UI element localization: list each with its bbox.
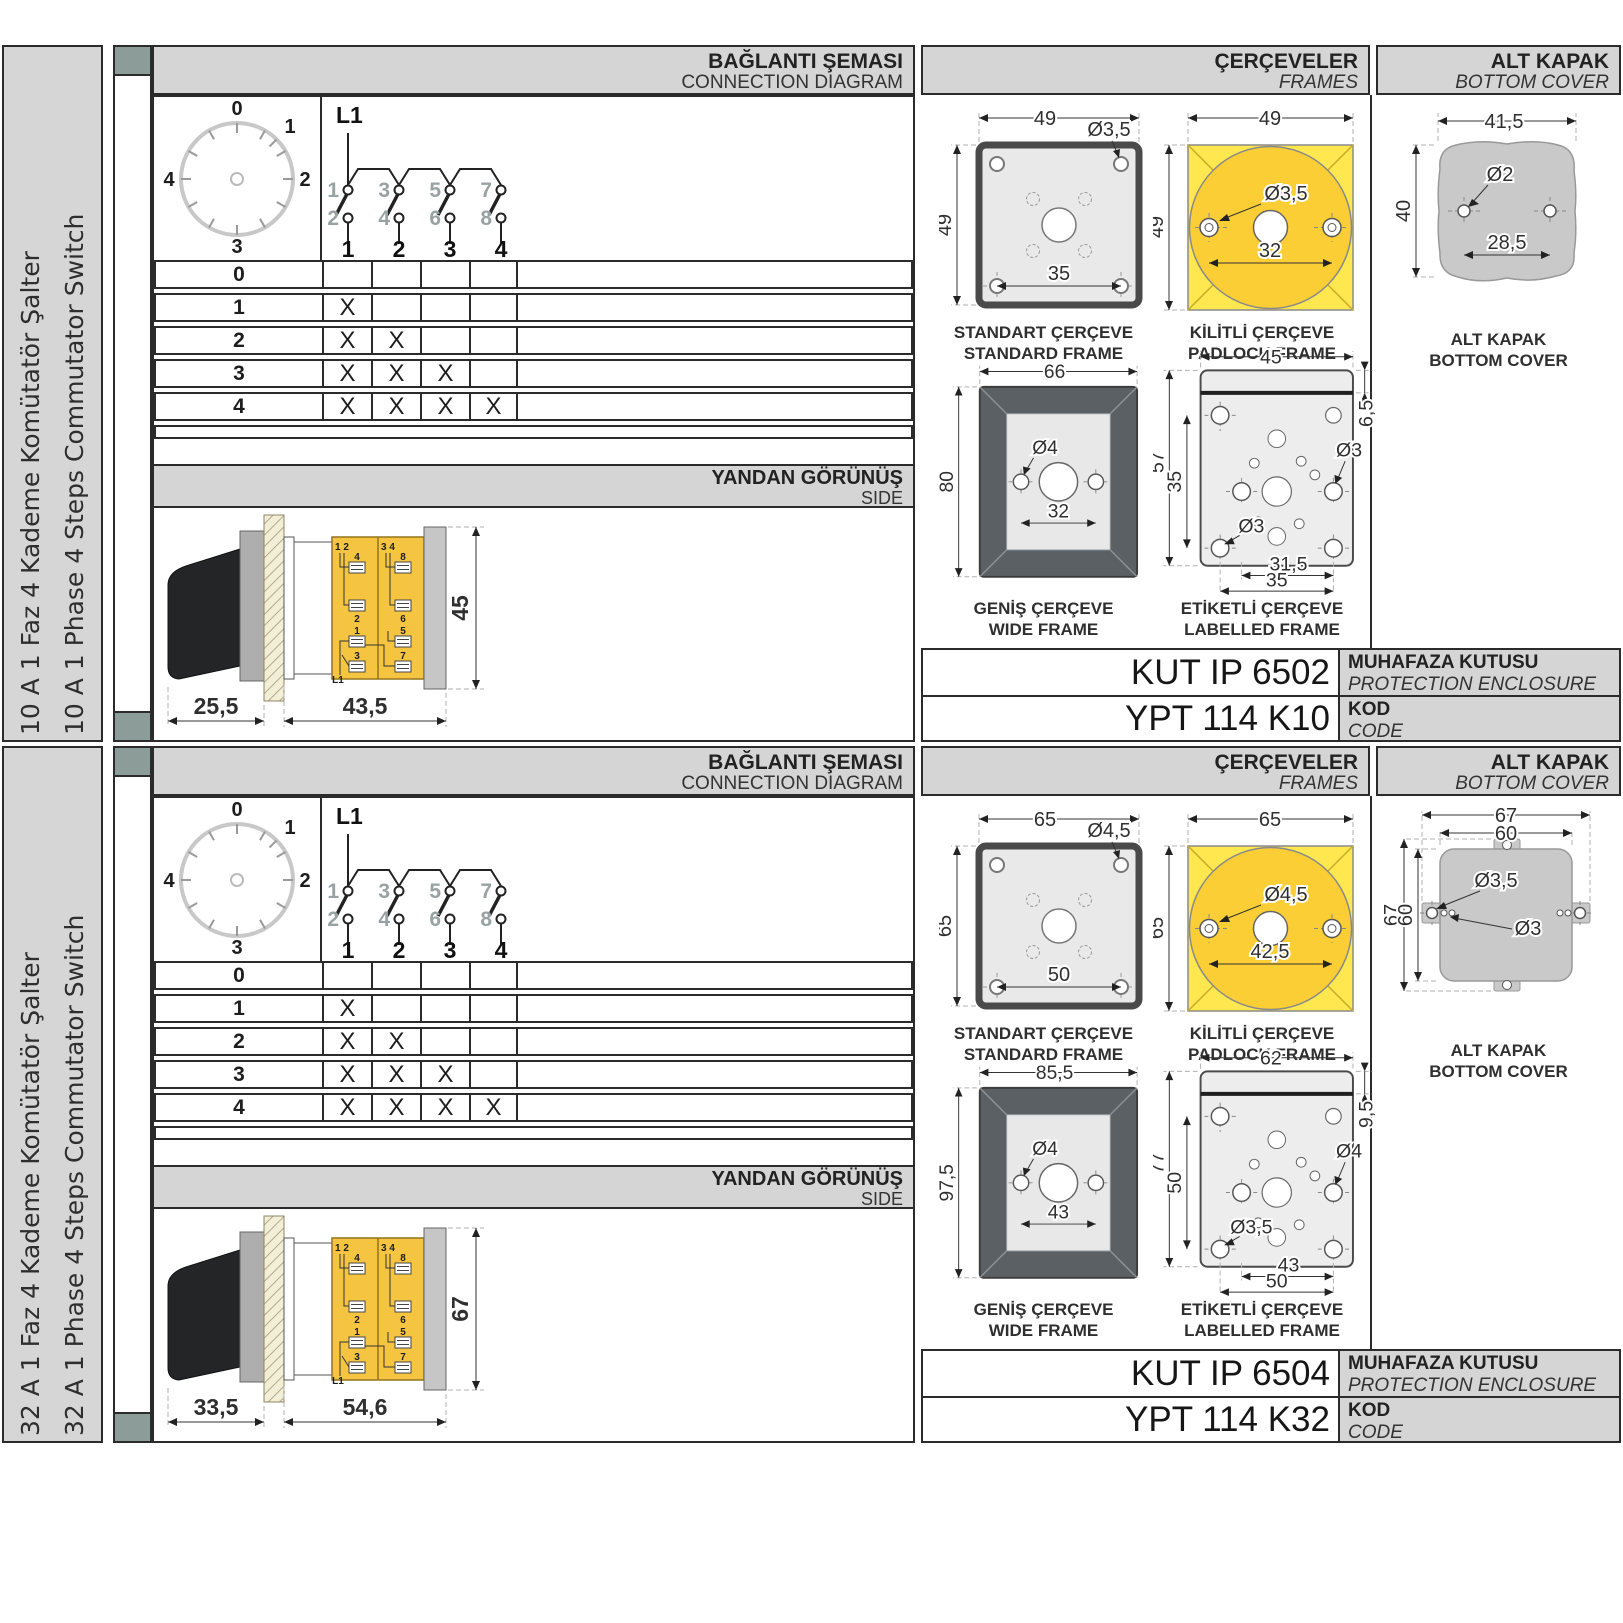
dim-lbl-width: 62 xyxy=(1260,1048,1282,1070)
product-code: YPT 114 K10 xyxy=(923,697,1338,740)
pole-1: 1 xyxy=(342,937,355,961)
table-cell-empty xyxy=(469,328,518,353)
contact-5: 5 xyxy=(429,179,441,202)
dim-lbl-hole-left: Ø3,5 xyxy=(1230,1217,1272,1239)
dim-handle-depth: 33,5 xyxy=(194,1394,239,1420)
table-cell-mark: X xyxy=(322,394,371,419)
table-cell-empty xyxy=(469,262,518,287)
term-1: 1 xyxy=(354,626,360,637)
contact-2: 2 xyxy=(327,207,339,230)
section-32a: 32 A 1 Faz 4 Kademe Komütatör Şalter 32 … xyxy=(0,746,1623,1443)
bottom-cover-figure: 67 60 Ø3,5 Ø3 67 60 xyxy=(1376,801,1621,1036)
term-2: 2 xyxy=(354,1315,360,1326)
schematic-bus xyxy=(348,169,501,185)
dial-pos-3: 3 xyxy=(231,236,242,258)
dial-pos-4: 4 xyxy=(163,169,175,191)
contact-3: 3 xyxy=(378,880,390,903)
schematic-box: L1 xyxy=(322,798,913,961)
term-3: 3 xyxy=(354,651,360,662)
dim-lbl-band: 6,5 xyxy=(1355,400,1377,427)
header-connection: BAĞLANTI ŞEMASI CONNECTION DIAGRAM xyxy=(152,746,915,796)
dim-lbl-pitch2: 35 xyxy=(1266,569,1288,591)
term-6: 6 xyxy=(400,1315,406,1326)
switch-body xyxy=(294,1243,332,1375)
term-4: 4 xyxy=(354,1253,360,1264)
table-cell-empty xyxy=(420,328,469,353)
product-title-en: 32 A 1 Phase 4 Steps Commutator Switch xyxy=(60,915,89,1436)
term-4: 4 xyxy=(354,552,360,563)
table-row: 1 X xyxy=(154,293,913,322)
dim-std-pitch: 50 xyxy=(1048,964,1070,986)
dim-std-height: 65 xyxy=(939,915,956,937)
bottom-cover-figure: Ø2 41,5 40 28,5 xyxy=(1376,103,1621,325)
table-row-empty xyxy=(154,1126,913,1140)
spine-square-top xyxy=(115,47,150,76)
panel-hatch xyxy=(264,1216,284,1402)
labelled-frame-caption: ETİKETLİ ÇERÇEVELABELLED FRAME xyxy=(1156,598,1368,641)
connection-column: 0 1 2 3 4 L1 xyxy=(152,95,915,742)
spine-square-bottom xyxy=(115,711,150,740)
term-3: 3 xyxy=(354,1352,360,1363)
header-connection-tr: BAĞLANTI ŞEMASI xyxy=(154,751,903,774)
term-8: 8 xyxy=(400,1253,406,1264)
row-label: 2 xyxy=(156,328,322,353)
dial-pos-0: 0 xyxy=(231,98,242,120)
row-label: 0 xyxy=(156,262,322,287)
mount-plate xyxy=(240,1232,264,1382)
dim-cover-height: 40 xyxy=(1393,200,1415,222)
pole-2: 2 xyxy=(393,236,406,260)
contact-3: 3 xyxy=(378,179,390,202)
table-cell-empty xyxy=(371,295,420,320)
table-cell-empty xyxy=(371,963,420,988)
table-row: 1 X xyxy=(154,994,913,1023)
dim-handle-depth: 25,5 xyxy=(194,693,239,719)
table-row: 4 X X X X xyxy=(154,1093,913,1122)
table-cell-empty xyxy=(371,262,420,287)
cover-caption: ALT KAPAKBOTTOM COVER xyxy=(1376,329,1621,372)
table-row: 0 xyxy=(154,961,913,990)
pole-4: 4 xyxy=(495,236,508,260)
table-cell-mark: X xyxy=(322,1062,371,1087)
table-cell-empty xyxy=(420,963,469,988)
flange xyxy=(284,1238,294,1380)
table-cell-empty xyxy=(469,361,518,386)
table-cell-mark: X xyxy=(322,295,371,320)
term-7: 7 xyxy=(400,651,406,662)
contact-8: 8 xyxy=(480,207,492,230)
term-l1: L1 xyxy=(332,675,344,686)
dim-lbl-hole-right: Ø3 xyxy=(1336,439,1362,461)
table-cell-mark: X xyxy=(469,394,518,419)
cover-caption: ALT KAPAKBOTTOM COVER xyxy=(1376,1040,1621,1083)
contact-5: 5 xyxy=(429,880,441,903)
dim-wide-hole: Ø4 xyxy=(1032,438,1058,459)
cover-column: Ø2 41,5 40 28,5 ALT KAPAKBOTTOM COVER xyxy=(1376,45,1621,742)
table-cell-mark: X xyxy=(322,996,371,1021)
contact-6: 6 xyxy=(429,908,441,931)
table-row: 3 X X X xyxy=(154,1060,913,1089)
dim-wide-pitch: 43 xyxy=(1048,1202,1069,1223)
dim-lbl-width: 45 xyxy=(1260,347,1282,369)
section-10a: 10 A 1 Faz 4 Kademe Komütatör Şalter 10 … xyxy=(0,45,1623,742)
row-label: 3 xyxy=(156,361,322,386)
switch-body xyxy=(294,542,332,674)
spine-square-bottom xyxy=(115,1412,150,1441)
table-cell-empty xyxy=(322,262,371,287)
schematic-box: L1 xyxy=(322,97,913,260)
enclosure-code: KUT IP 6504 xyxy=(923,1351,1338,1396)
dim-wide-pitch: 32 xyxy=(1048,501,1069,522)
row-label: 1 xyxy=(156,996,322,1021)
switch-handle xyxy=(168,549,240,679)
panel-hatch xyxy=(264,515,284,701)
dim-wide-width: 66 xyxy=(1044,362,1065,383)
dim-lbl-band: 9,5 xyxy=(1355,1101,1377,1128)
header-connection: BAĞLANTI ŞEMASI CONNECTION DIAGRAM xyxy=(152,45,915,95)
dim-std-width: 49 xyxy=(1034,108,1056,130)
dim-lbl-height: 57 xyxy=(1153,451,1168,473)
table-cell-empty xyxy=(420,295,469,320)
dim-body-depth: 54,6 xyxy=(343,1394,388,1420)
table-cell-mark: X xyxy=(371,394,420,419)
dim-pad-hole: Ø4,5 xyxy=(1264,884,1307,906)
enclosure-label: MUHAFAZA KUTUSU PROTECTION ENCLOSURE xyxy=(1338,650,1619,695)
side-view-header-tr: YANDAN GÖRÜNÜŞ xyxy=(154,467,903,489)
dial-pos-4: 4 xyxy=(163,870,175,892)
dial-pos-0: 0 xyxy=(231,799,242,821)
dim-cover-width: 41,5 xyxy=(1485,111,1524,133)
side-view-header: YANDAN GÖRÜNÜŞ SIDE xyxy=(154,464,913,508)
table-cell-empty xyxy=(322,963,371,988)
dim-wide-height: 80 xyxy=(939,471,958,492)
table-row-empty xyxy=(154,425,913,439)
dim-pad-width: 65 xyxy=(1259,809,1281,831)
code-label: KOD CODE xyxy=(1338,697,1619,740)
contact-6: 6 xyxy=(429,207,441,230)
dim-std-hole: Ø4,5 xyxy=(1087,820,1130,842)
contact-2: 2 xyxy=(327,908,339,931)
table-cell-empty xyxy=(420,1029,469,1054)
dim-cover-pitch: 28,5 xyxy=(1488,232,1527,254)
enclosure-code-row: KUT IP 6504 MUHAFAZA KUTUSU PROTECTION E… xyxy=(921,1349,1621,1398)
dim-std-hole: Ø3,5 xyxy=(1087,119,1130,141)
side-view-header: YANDAN GÖRÜNÜŞ SIDE xyxy=(154,1165,913,1209)
table-cell-mark: X xyxy=(371,1062,420,1087)
dim-cover-inner-height: 60 xyxy=(1395,904,1417,926)
dial-pos-1: 1 xyxy=(284,116,295,138)
dim-std-height: 49 xyxy=(939,214,956,236)
product-title-tr: 10 A 1 Faz 4 Kademe Komütatör Şalter xyxy=(16,251,45,735)
dim-lbl-pitch2: 50 xyxy=(1266,1270,1288,1292)
dim-pad-height: 65 xyxy=(1153,917,1168,939)
table-cell-mark: X xyxy=(371,328,420,353)
labelled-frame-caption: ETİKETLİ ÇERÇEVELABELLED FRAME xyxy=(1156,1299,1368,1342)
pole-3: 3 xyxy=(444,937,457,961)
switching-table: 0 1 X 2 X X 3 X xyxy=(154,961,913,1144)
standard-frame-figure: 65 Ø4,5 65 50 xyxy=(939,801,1149,1019)
dial-pos-3: 3 xyxy=(231,937,242,959)
side-view-header-tr: YANDAN GÖRÜNÜŞ xyxy=(154,1168,903,1190)
table-row: 3 X X X xyxy=(154,359,913,388)
enclosure-label: MUHAFAZA KUTUSU PROTECTION ENCLOSURE xyxy=(1338,1351,1619,1396)
product-code: YPT 114 K32 xyxy=(923,1398,1338,1441)
dim-body-depth: 43,5 xyxy=(343,693,388,719)
switching-table: 0 1 X 2 X X 3 X xyxy=(154,260,913,443)
enclosure-code-row: KUT IP 6502 MUHAFAZA KUTUSU PROTECTION E… xyxy=(921,648,1621,697)
dim-pad-height: 49 xyxy=(1153,216,1168,238)
dim-std-pitch: 35 xyxy=(1048,263,1070,285)
row-label: 4 xyxy=(156,394,322,419)
wide-frame-figure: Ø4 32 66 80 xyxy=(939,360,1151,595)
side-view-figure: 1 2 3 4 4 8 2 6 1 5 3 7 L1 33,5 54,6 xyxy=(154,1210,913,1443)
term-l1: L1 xyxy=(332,1376,344,1387)
table-cell-empty xyxy=(469,1029,518,1054)
term-5: 5 xyxy=(400,626,406,637)
table-cell-mark: X xyxy=(420,361,469,386)
table-cell-mark: X xyxy=(420,1095,469,1120)
binder-spine xyxy=(113,45,152,742)
dim-std-width: 65 xyxy=(1034,809,1056,831)
spine-square-top xyxy=(115,748,150,777)
dim-pad-pitch: 32 xyxy=(1259,240,1281,262)
schematic-figure: L1 xyxy=(322,97,913,260)
dim-height: 45 xyxy=(447,595,473,621)
contact-4: 4 xyxy=(378,207,390,230)
dim-pad-width: 49 xyxy=(1259,108,1281,130)
dim-wide-height: 97,5 xyxy=(939,1164,958,1201)
table-cell-mark: X xyxy=(322,361,371,386)
contact-4: 4 xyxy=(378,908,390,931)
wide-frame-caption: GENİŞ ÇERÇEVEWIDE FRAME xyxy=(931,1299,1156,1342)
table-row: 0 xyxy=(154,260,913,289)
contact-8: 8 xyxy=(480,908,492,931)
term-1: 1 xyxy=(354,1327,360,1338)
dim-lbl-height: 77 xyxy=(1153,1152,1168,1174)
side-view-figure: 1 2 3 4 4 8 2 6 1 5 3 7 L1 25,5 43,5 xyxy=(154,509,913,742)
table-row: 4 X X X X xyxy=(154,392,913,421)
left-title-strip: 32 A 1 Faz 4 Kademe Komütatör Şalter 32 … xyxy=(2,746,103,1443)
product-title-en: 10 A 1 Phase 4 Steps Commutator Switch xyxy=(60,214,89,735)
dial-figure: 0 1 2 3 4 xyxy=(154,798,320,961)
padlock-frame-figure: 65 65 Ø4,5 42,5 xyxy=(1153,801,1368,1019)
dim-lbl-hole-right: Ø4 xyxy=(1336,1140,1362,1162)
schematic-l1: L1 xyxy=(336,803,363,829)
table-cell-mark: X xyxy=(469,1095,518,1120)
dial-figure: 0 1 2 3 4 xyxy=(154,97,320,260)
side-view-header-en: SIDE xyxy=(154,489,903,509)
row-label: 2 xyxy=(156,1029,322,1054)
contact-1: 1 xyxy=(327,179,339,202)
code-row: YPT 114 K32 KOD CODE xyxy=(921,1398,1621,1443)
table-cell-mark: X xyxy=(420,1062,469,1087)
term-6: 6 xyxy=(400,614,406,625)
term-pair-left: 1 2 xyxy=(335,542,349,553)
dim-wide-width: 85,5 xyxy=(1036,1063,1073,1084)
dim-pad-hole: Ø3,5 xyxy=(1264,183,1307,205)
schematic-figure: L1 xyxy=(322,798,913,961)
dial-box: 0 1 2 3 4 xyxy=(154,97,322,260)
row-label: 4 xyxy=(156,1095,322,1120)
labelled-frame-figure: 45 6,5 57 35 Ø3 Ø3 31,5 35 xyxy=(1153,345,1381,597)
rear-cap xyxy=(424,1228,446,1390)
standard-frame-caption: STANDART ÇERÇEVESTANDARD FRAME xyxy=(931,1023,1156,1066)
left-title-strip: 10 A 1 Faz 4 Kademe Komütatör Şalter 10 … xyxy=(2,45,103,742)
rear-cap xyxy=(424,527,446,689)
wide-frame-figure: Ø4 43 85,5 97,5 xyxy=(939,1061,1151,1296)
dial-pos-1: 1 xyxy=(284,817,295,839)
wide-frame-caption: GENİŞ ÇERÇEVEWIDE FRAME xyxy=(931,598,1156,641)
code-row: YPT 114 K10 KOD CODE xyxy=(921,697,1621,742)
table-cell-empty xyxy=(469,996,518,1021)
dial-pos-2: 2 xyxy=(299,870,310,892)
row-label: 0 xyxy=(156,963,322,988)
dim-lbl-hole-left: Ø3 xyxy=(1238,516,1264,538)
contact-7: 7 xyxy=(480,179,492,202)
table-row: 2 X X xyxy=(154,1027,913,1056)
switch-handle xyxy=(168,1250,240,1380)
connection-column: 0 1 2 3 4 L1 xyxy=(152,796,915,1443)
dim-pad-pitch: 42,5 xyxy=(1251,941,1290,963)
term-pair-right: 3 4 xyxy=(381,542,395,553)
table-row: 2 X X xyxy=(154,326,913,355)
frames-column: 49 Ø3,5 49 35 STANDART ÇERÇEVESTANDARD F… xyxy=(921,45,1370,742)
header-connection-en: CONNECTION DIAGRAM xyxy=(154,774,903,795)
dim-height: 67 xyxy=(447,1296,473,1322)
term-pair-left: 1 2 xyxy=(335,1243,349,1254)
catalog-page: 10 A 1 Faz 4 Kademe Komütatör Şalter 10 … xyxy=(0,0,1623,1623)
contact-7: 7 xyxy=(480,880,492,903)
term-5: 5 xyxy=(400,1327,406,1338)
flange xyxy=(284,537,294,679)
code-label: KOD CODE xyxy=(1338,1398,1619,1441)
dim-cover-hole: Ø3,5 xyxy=(1474,870,1517,892)
table-cell-empty xyxy=(420,996,469,1021)
table-cell-mark: X xyxy=(322,1029,371,1054)
dial-box: 0 1 2 3 4 xyxy=(154,798,322,961)
cover-column: 67 60 Ø3,5 Ø3 67 60 ALT KAPAKBOTTOM COVE… xyxy=(1376,746,1621,1443)
schematic-l1: L1 xyxy=(336,102,363,128)
padlock-frame-figure: 49 49 Ø3,5 32 xyxy=(1153,100,1368,318)
dim-cover-hole: Ø2 xyxy=(1487,164,1514,186)
dim-wide-hole: Ø4 xyxy=(1032,1139,1058,1160)
pole-1: 1 xyxy=(342,236,355,260)
pole-2: 2 xyxy=(393,937,406,961)
standard-frame-caption: STANDART ÇERÇEVESTANDARD FRAME xyxy=(931,322,1156,365)
table-cell-mark: X xyxy=(322,328,371,353)
labelled-frame-figure: 62 9,5 77 50 Ø4 Ø3,5 43 50 xyxy=(1153,1046,1381,1298)
table-cell-mark: X xyxy=(420,394,469,419)
dim-cover-inner-width: 60 xyxy=(1495,823,1517,845)
table-cell-mark: X xyxy=(371,1095,420,1120)
header-connection-tr: BAĞLANTI ŞEMASI xyxy=(154,50,903,73)
dim-lbl-inner-height: 35 xyxy=(1164,471,1186,493)
header-connection-en: CONNECTION DIAGRAM xyxy=(154,73,903,94)
table-cell-empty xyxy=(469,963,518,988)
term-8: 8 xyxy=(400,552,406,563)
binder-spine xyxy=(113,746,152,1443)
dial-pos-2: 2 xyxy=(299,169,310,191)
dim-cover-hole2: Ø3 xyxy=(1515,918,1542,940)
term-7: 7 xyxy=(400,1352,406,1363)
mount-plate xyxy=(240,531,264,681)
table-cell-empty xyxy=(469,1062,518,1087)
table-cell-mark: X xyxy=(322,1095,371,1120)
side-view-header-en: SIDE xyxy=(154,1190,903,1210)
row-label: 1 xyxy=(156,295,322,320)
table-cell-mark: X xyxy=(371,361,420,386)
row-label: 3 xyxy=(156,1062,322,1087)
contact-1: 1 xyxy=(327,880,339,903)
table-cell-empty xyxy=(371,996,420,1021)
pole-4: 4 xyxy=(495,937,508,961)
schematic-bus xyxy=(348,870,501,886)
table-cell-empty xyxy=(469,295,518,320)
term-2: 2 xyxy=(354,614,360,625)
term-pair-right: 3 4 xyxy=(381,1243,395,1254)
table-cell-empty xyxy=(420,262,469,287)
standard-frame-figure: 49 Ø3,5 49 35 xyxy=(939,100,1149,318)
table-cell-mark: X xyxy=(371,1029,420,1054)
frames-column: 65 Ø4,5 65 50 STANDART ÇERÇEVESTANDARD F… xyxy=(921,746,1370,1443)
product-title-tr: 32 A 1 Faz 4 Kademe Komütatör Şalter xyxy=(16,952,45,1436)
pole-3: 3 xyxy=(444,236,457,260)
dim-lbl-inner-height: 50 xyxy=(1164,1172,1186,1194)
enclosure-code: KUT IP 6502 xyxy=(923,650,1338,695)
